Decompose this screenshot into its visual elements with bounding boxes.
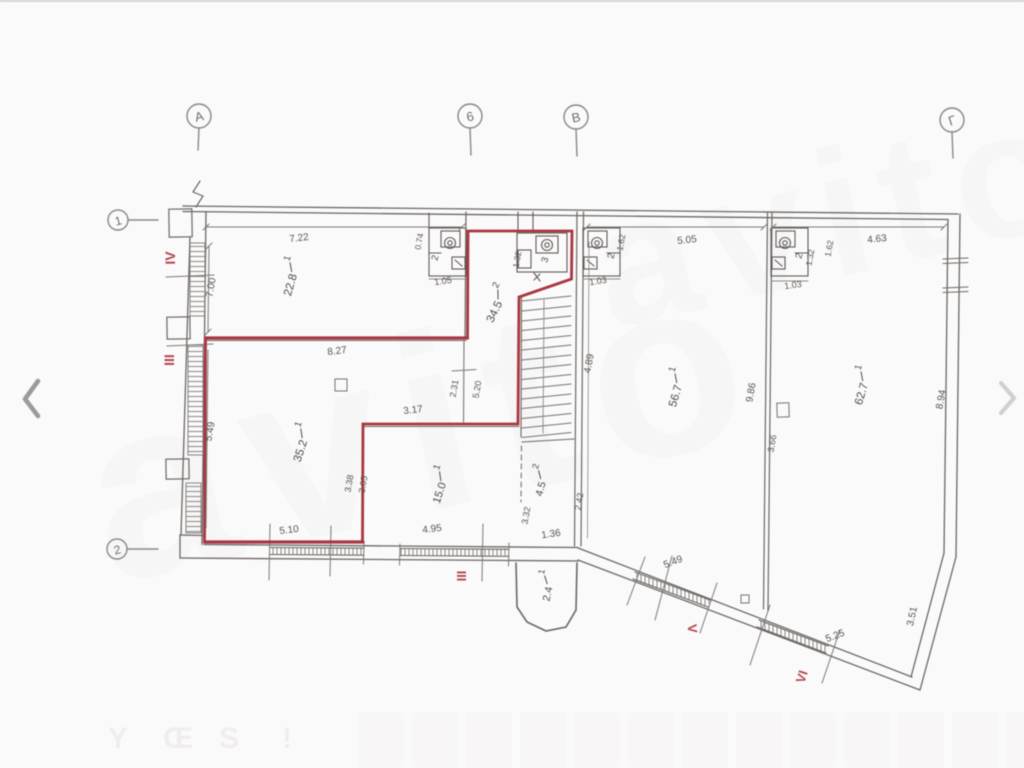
svg-text:Œ: Œ bbox=[163, 722, 193, 755]
svg-text:IV: IV bbox=[162, 251, 178, 265]
svg-text:V: V bbox=[685, 624, 701, 634]
svg-text:4.63: 4.63 bbox=[867, 233, 888, 246]
svg-text:III: III bbox=[161, 354, 177, 366]
svg-text:Y: Y bbox=[108, 722, 128, 755]
svg-text:5.05: 5.05 bbox=[677, 234, 698, 247]
svg-text:S: S bbox=[219, 722, 239, 755]
svg-text:III: III bbox=[454, 571, 469, 582]
svg-text:!: ! bbox=[282, 722, 292, 755]
